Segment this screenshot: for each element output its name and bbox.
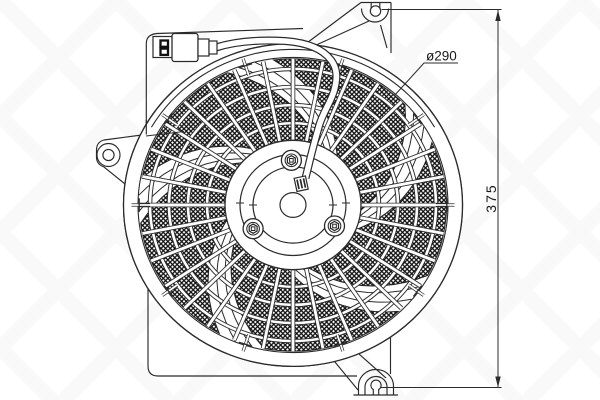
svg-text:ø290: ø290: [426, 49, 457, 64]
svg-text:375: 375: [483, 183, 499, 212]
